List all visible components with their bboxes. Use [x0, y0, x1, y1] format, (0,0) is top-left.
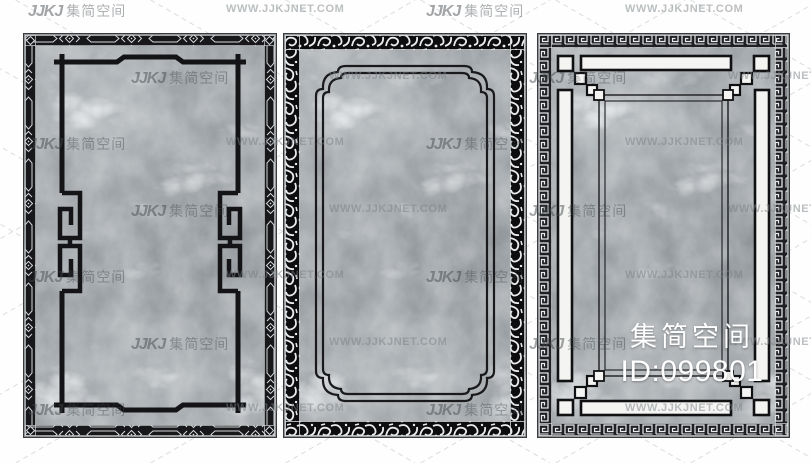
id-overlay: 集简空间 ID:099801 — [572, 320, 811, 389]
panel-2-border-art — [283, 33, 527, 438]
site-watermark: WWW.JJKJNET.COM — [625, 4, 743, 15]
corner-cap-square — [558, 56, 573, 71]
brand-watermark: JJKJ集简空间 — [426, 4, 524, 20]
stock-image-preview: JJKJ集简空间WWW.JJKJNET.COMJJKJ集简空间WWW.JJKJN… — [0, 0, 811, 463]
corner-cap-square — [754, 56, 769, 71]
site-watermark: WWW.JJKJNET.COM — [226, 4, 344, 15]
brand-logo: JJKJ — [28, 3, 62, 20]
overlay-studio-name: 集简空间 — [572, 320, 811, 354]
double-line-curved-frame — [316, 66, 494, 401]
brand-watermark: JJKJ集简空间 — [28, 4, 126, 20]
marble-panel-scroll-border — [283, 33, 527, 438]
inner-cloud-frame — [54, 54, 246, 413]
meander-medallion-left — [60, 193, 80, 291]
overlay-image-id: ID:099801 — [572, 354, 811, 389]
brand-logo: JJKJ — [426, 3, 460, 20]
marble-panel-meander-inlay — [23, 33, 277, 438]
brand-name: 集简空间 — [464, 3, 524, 19]
corner-cap-square — [558, 400, 573, 415]
meander-medallion-right — [220, 193, 240, 291]
panel-1-border-art — [23, 33, 277, 438]
carved-scroll-border — [285, 35, 525, 436]
brand-name: 集简空间 — [66, 3, 126, 19]
corner-cap-square — [754, 400, 769, 415]
